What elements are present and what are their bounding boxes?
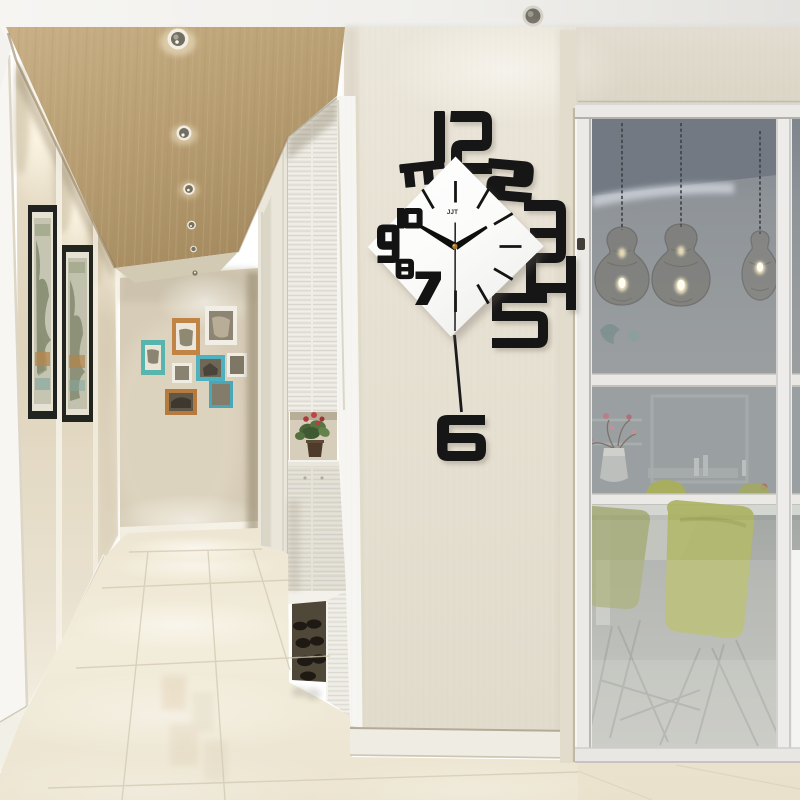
svg-text:JJT: JJT xyxy=(447,209,458,216)
